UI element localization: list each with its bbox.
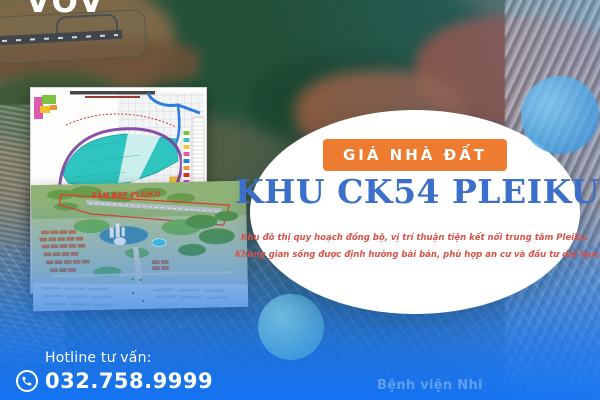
airport-label: SÂN BAY PLEIKU (91, 190, 160, 200)
vov-logo: VOV (26, 0, 105, 20)
phone-icon (16, 370, 38, 392)
hero-description: Khu đô thị quy hoạch đồng bộ, vị trí thu… (235, 230, 595, 264)
masterplan-render-inset: SÂN BAY PLEIKU (31, 181, 249, 311)
promo-thumbnail: SÂN BAY PLEIKU (0, 0, 600, 400)
hero-description-line-1: Khu đô thị quy hoạch đồng bộ, vị trí thu… (235, 230, 595, 247)
hero-description-line-2: Không gian sống được định hướng bài bản,… (235, 247, 595, 264)
hotline-label: Hotline tư vấn: (45, 350, 213, 366)
page-title: KHU CK54 PLEIKU (235, 172, 595, 211)
hotline-block: Hotline tư vấn: 032.758.9999 (16, 350, 213, 393)
masterplan-render: SÂN BAY PLEIKU (31, 181, 249, 311)
hero-ellipse: GIÁ NHÀ ĐẤT KHU CK54 PLEIKU Khu đô thị q… (250, 110, 580, 314)
category-badge: GIÁ NHÀ ĐẤT (323, 139, 507, 171)
hotline-number: 032.758.9999 (45, 369, 213, 393)
map-label-hospital: Bệnh viện Nhi (377, 378, 483, 393)
